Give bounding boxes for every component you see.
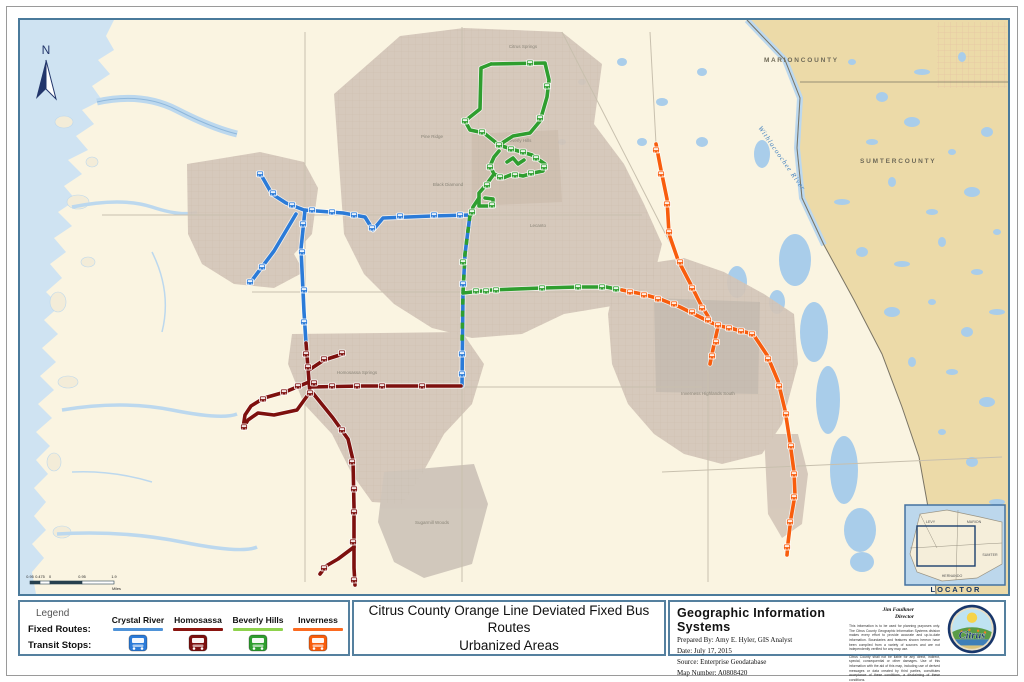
- bus-stop-crystal-river: [289, 202, 296, 208]
- bus-stop-inverness: [689, 309, 696, 315]
- bus-stop-beverly-hills: [484, 182, 491, 188]
- legend-route-line: [173, 628, 223, 631]
- svg-text:SUMTER: SUMTER: [982, 553, 998, 557]
- bus-stop-crystal-river: [259, 264, 266, 270]
- bus-stop-beverly-hills: [493, 287, 500, 293]
- bus-stop-homosassa: [349, 459, 356, 465]
- bus-stop-inverness: [666, 229, 673, 235]
- bus-stop-beverly-hills: [537, 115, 544, 121]
- bus-stop-beverly-hills: [512, 172, 519, 178]
- director-title: Director: [895, 614, 914, 620]
- marion-county-label: M A R I O N C O U N T Y: [764, 57, 838, 64]
- svg-text:LEVY: LEVY: [926, 520, 936, 524]
- citrus-county-seal: Citrus: [944, 605, 1000, 652]
- bus-stop-icon: [248, 634, 268, 652]
- bus-stop-beverly-hills: [527, 60, 534, 66]
- legend-route-name: Inverness: [298, 605, 338, 625]
- legend-column-crystal-river: Crystal River: [108, 605, 168, 652]
- bus-stop-crystal-river: [299, 249, 306, 255]
- bus-stop-beverly-hills: [575, 284, 582, 290]
- bus-stop-crystal-river: [431, 212, 438, 218]
- town-label: Inverness Highlands South: [681, 391, 735, 396]
- svg-text:Miles: Miles: [112, 587, 121, 591]
- bus-stop-homosassa: [321, 356, 328, 362]
- bus-stop-crystal-river: [460, 281, 467, 287]
- bus-stop-homosassa: [321, 565, 328, 571]
- transit-stops-label: Transit Stops:: [28, 640, 108, 651]
- legend-column-homosassa: Homosassa: [168, 605, 228, 652]
- bus-stop-crystal-river: [329, 209, 336, 215]
- gis-prepared-by: Prepared By: Amy E. Hyler, GIS Analyst: [677, 635, 849, 645]
- map-title-line1: Citrus County Orange Line Deviated Fixed…: [354, 602, 664, 637]
- svg-text:HERNANDO: HERNANDO: [942, 574, 963, 578]
- bus-stop-beverly-hills: [599, 284, 606, 290]
- svg-text:1.9: 1.9: [111, 575, 116, 579]
- bus-stop-homosassa: [379, 383, 386, 389]
- bus-stop-inverness: [788, 443, 795, 449]
- svg-text:MARION: MARION: [967, 520, 982, 524]
- bus-stop-inverness: [709, 353, 716, 359]
- bus-stop-crystal-river: [351, 212, 358, 218]
- bus-stop-inverness: [784, 544, 791, 550]
- fixed-routes-label: Fixed Routes:: [28, 624, 108, 635]
- bus-stop-inverness: [641, 292, 648, 298]
- bus-stop-homosassa: [351, 509, 358, 515]
- bus-stop-crystal-river: [457, 212, 464, 218]
- bus-stop-icon: [128, 634, 148, 652]
- bus-stop-beverly-hills: [483, 288, 490, 294]
- bus-stop-beverly-hills: [541, 164, 548, 170]
- north-label: N: [42, 43, 51, 57]
- bus-stop-homosassa: [351, 577, 358, 583]
- town-label: Black Diamond: [433, 182, 464, 187]
- gis-director: Jim Faulkner Director: [849, 607, 940, 621]
- map-title-line2: Urbanized Areas: [459, 637, 559, 655]
- map-title-panel: Citrus County Orange Line Deviated Fixed…: [352, 600, 666, 656]
- svg-text:0.95: 0.95: [78, 575, 85, 579]
- bus-stop-inverness: [787, 519, 794, 525]
- bus-stop-beverly-hills: [489, 202, 496, 208]
- bus-stop-beverly-hills: [533, 155, 540, 161]
- bus-stop-crystal-river: [369, 225, 376, 231]
- bus-stop-homosassa: [260, 396, 267, 402]
- bus-stop-crystal-river: [247, 279, 254, 285]
- svg-text:0: 0: [49, 575, 51, 579]
- bus-stop-inverness: [655, 296, 662, 302]
- bus-stop-inverness: [658, 171, 665, 177]
- bus-stop-homosassa: [350, 539, 357, 545]
- bus-stop-beverly-hills: [479, 129, 486, 135]
- bus-stop-homosassa: [281, 389, 288, 395]
- legend-column-beverly-hills: Beverly Hills: [228, 605, 288, 652]
- bus-stop-inverness: [653, 147, 660, 153]
- seal-text: Citrus: [959, 630, 986, 641]
- gis-source: Source: Enterprise Geodatabase: [677, 657, 849, 667]
- legend-route-name: Homosassa: [174, 605, 222, 625]
- legend-columns: Crystal RiverHomosassaBeverly HillsInver…: [108, 605, 348, 652]
- bus-stop-homosassa: [354, 383, 361, 389]
- bottom-panel: Legend Fixed Routes: Transit Stops: Crys…: [18, 600, 1006, 656]
- legend-route-line: [293, 628, 343, 631]
- bus-stop-beverly-hills: [528, 170, 535, 176]
- bus-stop-inverness: [791, 471, 798, 477]
- bus-stop-homosassa: [311, 380, 318, 386]
- legend-route-line: [233, 628, 283, 631]
- bus-stop-inverness: [677, 259, 684, 265]
- bus-stop-inverness: [664, 201, 671, 207]
- bus-stop-beverly-hills: [520, 149, 527, 155]
- gis-disclaimer-2: Citrus County shall not be liable for an…: [849, 655, 940, 682]
- bus-stop-icon: [308, 634, 328, 652]
- bus-stop-homosassa: [339, 427, 346, 433]
- bus-stop-inverness: [671, 301, 678, 307]
- bus-stop-homosassa: [241, 424, 248, 430]
- bus-stop-inverness: [715, 322, 722, 328]
- gis-heading: Geographic Information Systems: [677, 606, 849, 634]
- bus-stop-crystal-river: [397, 213, 404, 219]
- town-label: Citrus Springs: [509, 44, 538, 49]
- gis-disclaimer-1: This information is to be used for plann…: [849, 624, 940, 652]
- bus-stop-inverness: [699, 305, 706, 311]
- bus-stop-homosassa: [419, 383, 426, 389]
- gis-map-number: Map Number: A0808420: [677, 668, 849, 678]
- bus-stop-crystal-river: [300, 221, 307, 227]
- town-label: Lecanto: [530, 223, 547, 228]
- locator-title: L O C A T O R: [931, 585, 980, 594]
- bus-stop-inverness: [738, 328, 745, 334]
- bus-stop-crystal-river: [270, 190, 277, 196]
- legend-column-inverness: Inverness: [288, 605, 348, 652]
- bus-stop-beverly-hills: [497, 174, 504, 180]
- bus-stop-beverly-hills: [508, 146, 515, 152]
- bus-stop-crystal-river: [301, 319, 308, 325]
- bus-stop-inverness: [627, 289, 634, 295]
- gis-panel: Geographic Information Systems Prepared …: [668, 600, 1006, 656]
- bus-stop-beverly-hills: [462, 118, 469, 124]
- legend-route-name: Crystal River: [112, 605, 164, 625]
- locator-inset: LEVY MARION SUMTER HERNANDO L O C A T O …: [905, 505, 1005, 594]
- bus-stop-inverness: [713, 339, 720, 345]
- bus-stop-beverly-hills: [496, 142, 503, 148]
- legend-heading: Legend: [36, 608, 108, 619]
- bus-stop-inverness: [783, 411, 790, 417]
- bus-stop-beverly-hills: [473, 288, 480, 294]
- bus-stop-icon: [188, 634, 208, 652]
- director-name: Jim Faulkner: [883, 607, 914, 613]
- town-label: Pine Ridge: [421, 134, 444, 139]
- bus-stop-homosassa: [351, 486, 358, 492]
- gis-date: Date: July 17, 2015: [677, 646, 849, 656]
- bus-stop-crystal-river: [459, 351, 466, 357]
- bus-stop-homosassa: [303, 351, 310, 357]
- bus-stop-beverly-hills: [487, 164, 494, 170]
- bus-stop-inverness: [689, 285, 696, 291]
- map-svg: M A R I O N C O U N T Y S U M T E R C O …: [20, 20, 1008, 594]
- bus-stop-crystal-river: [459, 371, 466, 377]
- bus-stop-inverness: [765, 356, 772, 362]
- bus-stop-beverly-hills: [469, 209, 476, 215]
- bus-stop-inverness: [705, 317, 712, 323]
- bus-stop-homosassa: [339, 350, 346, 356]
- svg-text:0.475: 0.475: [35, 575, 45, 579]
- bus-stop-beverly-hills: [544, 83, 551, 89]
- bus-stop-homosassa: [329, 383, 336, 389]
- bus-stop-beverly-hills: [613, 286, 620, 292]
- bus-stop-beverly-hills: [460, 259, 467, 265]
- town-label: Sugarmill Woods: [415, 520, 450, 525]
- town-label: Homosassa Springs: [337, 370, 378, 375]
- bus-stop-inverness: [749, 331, 756, 337]
- map-canvas: M A R I O N C O U N T Y S U M T E R C O …: [18, 18, 1010, 596]
- bus-stop-crystal-river: [301, 287, 308, 293]
- bus-stop-crystal-river: [257, 171, 264, 177]
- bus-stop-homosassa: [307, 390, 314, 396]
- bus-stop-inverness: [776, 383, 783, 389]
- bus-stop-beverly-hills: [539, 285, 546, 291]
- bus-stop-inverness: [791, 494, 798, 500]
- legend-route-line: [113, 628, 163, 631]
- sumter-county-label: S U M T E R C O U N T Y: [860, 158, 935, 165]
- legend-route-name: Beverly Hills: [232, 605, 283, 625]
- bus-stop-crystal-river: [309, 207, 316, 213]
- svg-text:0.95: 0.95: [26, 575, 33, 579]
- bus-stop-homosassa: [305, 364, 312, 370]
- bus-stop-inverness: [726, 325, 733, 331]
- legend-panel: Legend Fixed Routes: Transit Stops: Crys…: [18, 600, 350, 656]
- bus-stop-homosassa: [295, 383, 302, 389]
